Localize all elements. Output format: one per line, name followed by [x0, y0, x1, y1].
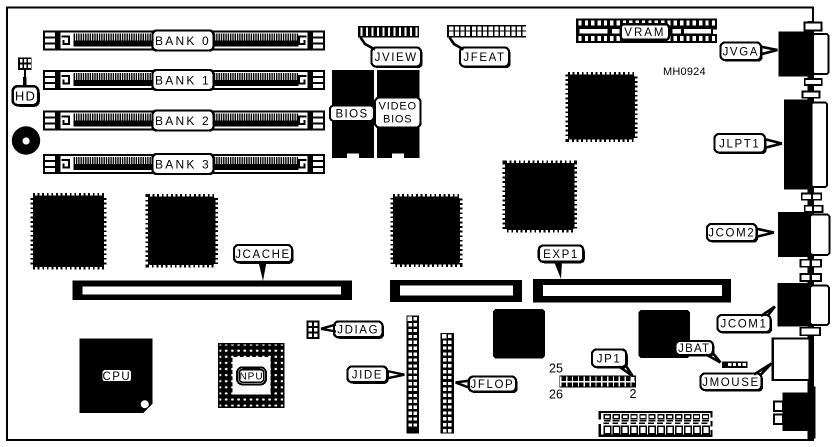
svg-text:JMOUSE: JMOUSE [702, 377, 760, 389]
svg-text:EXP1: EXP1 [543, 249, 579, 261]
svg-text:26: 26 [549, 388, 563, 402]
svg-text:VIDEO: VIDEO [379, 101, 417, 113]
svg-text:JLPT1: JLPT1 [719, 138, 760, 150]
svg-text:JDIAG: JDIAG [337, 325, 379, 337]
svg-text:JIDE: JIDE [352, 370, 383, 382]
svg-text:BANK 2: BANK 2 [155, 114, 211, 128]
svg-text:VRAM: VRAM [624, 27, 665, 39]
svg-text:JCOM1: JCOM1 [721, 319, 768, 331]
svg-text:2: 2 [630, 387, 637, 401]
svg-text:JP1: JP1 [597, 353, 622, 365]
svg-text:BANK 3: BANK 3 [155, 157, 211, 171]
svg-text:HD: HD [15, 88, 36, 103]
svg-text:CPU: CPU [103, 371, 131, 383]
svg-text:BANK 1: BANK 1 [155, 73, 211, 87]
svg-text:25: 25 [549, 362, 563, 376]
svg-text:JVIEW: JVIEW [375, 52, 418, 64]
svg-text:JCACHE: JCACHE [235, 249, 291, 261]
svg-text:MH0924: MH0924 [663, 66, 706, 78]
svg-text:BIOS: BIOS [383, 114, 413, 126]
svg-text:JBAT: JBAT [678, 343, 710, 355]
svg-text:BANK 0: BANK 0 [155, 34, 211, 48]
svg-text:JFEAT: JFEAT [463, 52, 505, 64]
svg-text:BIOS: BIOS [335, 108, 368, 120]
svg-text:NPU: NPU [239, 372, 263, 383]
svg-text:JVGA: JVGA [723, 46, 759, 58]
svg-text:JFLOP: JFLOP [471, 379, 515, 391]
svg-text:JCOM2: JCOM2 [708, 228, 755, 240]
